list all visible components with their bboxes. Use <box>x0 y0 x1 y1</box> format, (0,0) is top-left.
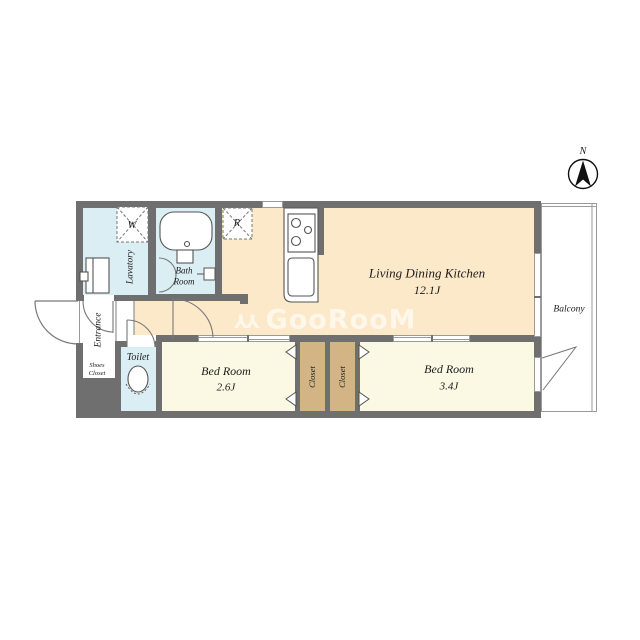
bath-shower-fixture <box>197 268 215 280</box>
washer-label: W <box>128 221 137 232</box>
bath-door-swing <box>159 258 176 292</box>
ldk-name-label: Living Dining Kitchen <box>369 267 485 280</box>
hall-divider-line <box>116 301 134 341</box>
watermark-logo-text: GooRooM <box>266 305 417 336</box>
goorooom-watermark: YY GooRooM <box>236 305 417 336</box>
shoes-closet-label-line1: Shoes <box>89 363 104 370</box>
balcony-door-swing <box>542 347 576 390</box>
bath-room-label-line1: Bath <box>176 267 193 276</box>
bathtub <box>160 212 212 263</box>
ldk-size-label: 12.1J <box>414 284 440 296</box>
shoes-closet-label-line2: Closet <box>89 371 106 378</box>
toilet-door-swing <box>127 320 155 347</box>
stove-burner <box>292 237 301 246</box>
north-compass-icon <box>569 160 598 189</box>
closet-left-label: Closet <box>308 366 317 388</box>
entrance-door-swing <box>35 301 80 344</box>
bedroom-small-name-label: Bed Room <box>201 365 251 377</box>
floor-plan: Living Dining Kitchen 12.1J Bed Room 2.6… <box>0 0 640 640</box>
north-label: N <box>580 147 587 157</box>
bedroom-large-name-label: Bed Room <box>424 363 474 375</box>
bath-room-label-line2: Room <box>174 278 195 287</box>
ldk-door-swing <box>173 299 213 338</box>
bedroom-large-size-label: 3.4J <box>440 382 459 393</box>
stove-burner <box>305 227 312 234</box>
kitchen-sink <box>288 258 314 296</box>
refrigerator-label: R <box>234 219 240 230</box>
lavatory-label: Lavatory <box>126 250 136 284</box>
balcony-label: Balcony <box>553 305 584 315</box>
stove <box>288 214 315 252</box>
closet-right-label: Closet <box>338 366 347 388</box>
toilet-label: Toilet <box>127 353 149 363</box>
toilet-bowl <box>126 366 150 394</box>
lavatory-sink <box>80 258 109 293</box>
kitchen-counter <box>284 208 318 302</box>
entrance-label: Entrance <box>94 313 104 348</box>
stove-burner <box>292 219 301 228</box>
bedroom-small-size-label: 2.6J <box>217 383 236 394</box>
closet-door-triangles <box>286 345 369 406</box>
watermark-logo-icon: YY <box>236 309 260 331</box>
sliding-door-panels <box>198 335 470 342</box>
